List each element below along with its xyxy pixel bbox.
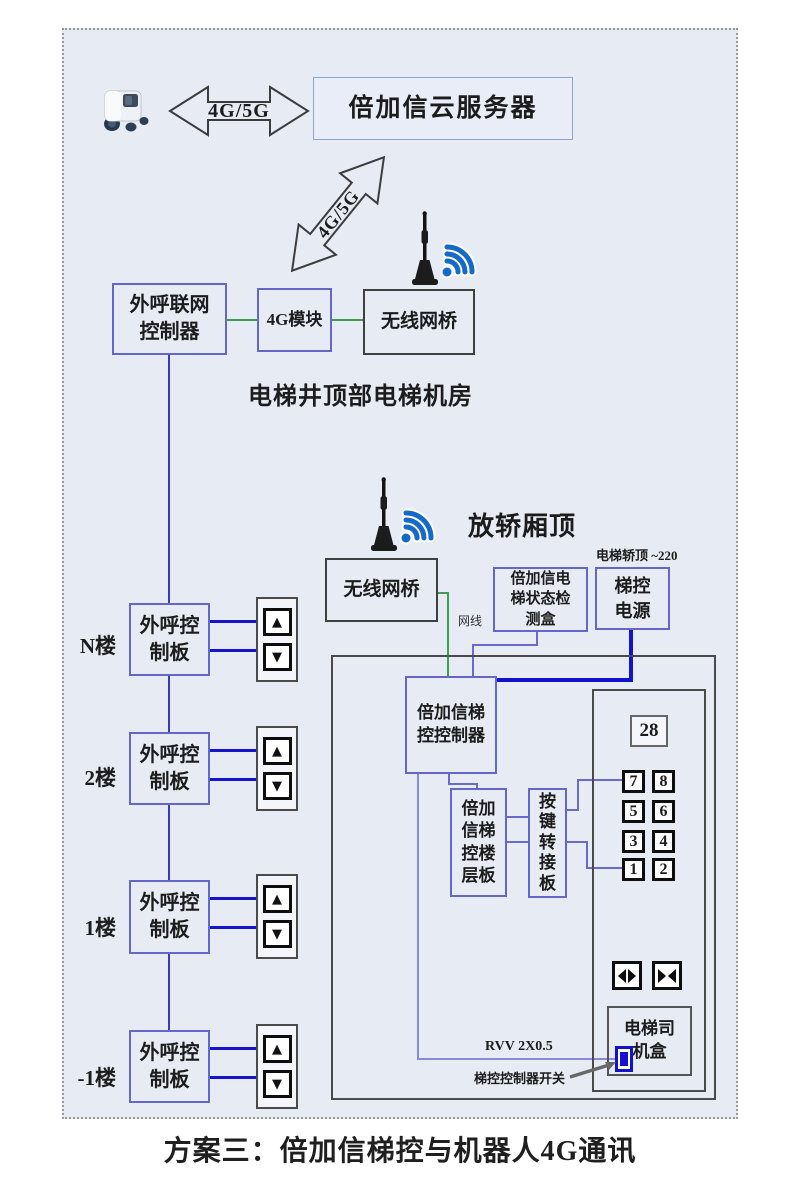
box-line: 外呼控 [140, 613, 200, 640]
trunk-line [168, 952, 170, 1031]
box-line: 控制器 [140, 319, 200, 346]
box-line: 控控制器 [417, 725, 485, 748]
floor-label-1: 1楼 [52, 912, 116, 942]
car-key-3: 3 [622, 830, 645, 853]
leader-arrow-icon [568, 1056, 618, 1080]
door-close-button [652, 961, 682, 990]
box-line: 外呼控 [140, 890, 200, 917]
floor-display: 28 [630, 715, 668, 747]
outcall-board-box: 外呼控 制板 [129, 1030, 210, 1103]
up-arrow-icon: ▲ [272, 615, 282, 630]
cloud-server-label: 倍加信云服务器 [348, 92, 537, 126]
down-arrow-icon: ▼ [272, 779, 282, 794]
diagram-canvas: { "page": { "title": "方案三：倍加信梯控与机器人4G通讯"… [0, 0, 800, 1193]
down-button: ▼ [263, 1070, 292, 1098]
wireless-bridge-box-machine-room: 无线网桥 [363, 289, 475, 355]
box-line: 无线网桥 [343, 577, 419, 603]
module-4g-box: 4G模块 [257, 288, 332, 352]
link-line [472, 644, 538, 646]
floor-board-box: 倍加 信梯 控楼 层板 [450, 788, 507, 897]
down-arrow-icon: ▼ [272, 1077, 282, 1092]
down-arrow-icon: ▼ [272, 927, 282, 942]
link-line [507, 841, 528, 843]
link-line [577, 780, 579, 811]
wireless-bridge-box-car-top: 无线网桥 [325, 558, 438, 622]
box-line: 4G模块 [267, 309, 323, 332]
up-button: ▲ [263, 737, 292, 765]
link-line [210, 620, 256, 623]
up-button: ▲ [263, 1035, 292, 1063]
floor-label-2: 2楼 [52, 762, 116, 792]
robot-cloud-link-arrow: 4G/5G [168, 84, 310, 138]
diagram-title: 方案三：倍加信梯控与机器人4G通讯 [0, 1129, 800, 1169]
link-line [210, 1076, 256, 1079]
link-line [210, 749, 256, 752]
box-line: 倍加信电 [510, 569, 570, 589]
car-key-2: 2 [652, 858, 675, 881]
link-line [586, 841, 588, 869]
car-key-8: 8 [652, 770, 675, 793]
up-arrow-icon: ▲ [272, 1042, 282, 1057]
box-line: 无线网桥 [381, 309, 457, 335]
car-key-5: 5 [622, 800, 645, 823]
wifi-antenna-icon [401, 210, 481, 292]
link-line [210, 926, 256, 929]
box-line: 键 [539, 812, 556, 832]
cloud-server-box: 倍加信云服务器 [313, 77, 573, 140]
door-close-icon [657, 967, 677, 985]
box-line: 制板 [150, 917, 190, 944]
box-line: 梯控 [615, 574, 651, 598]
box-line: 机盒 [633, 1041, 667, 1064]
box-line: 梯状态检 [510, 589, 570, 609]
key-adapter-box: 按 键 转 接 板 [528, 788, 567, 898]
door-open-icon [617, 967, 637, 985]
box-line: 制板 [150, 769, 190, 796]
trunk-line [168, 675, 170, 733]
hall-button-panel: ▲ ▼ [256, 726, 298, 811]
delivery-robot-icon [98, 84, 152, 134]
box-line: 信梯 [462, 820, 496, 842]
link-line [227, 319, 257, 321]
box-line: 层板 [462, 865, 496, 887]
net-cable-label: 网线 [458, 612, 482, 629]
down-arrow-icon: ▼ [272, 650, 282, 665]
key-label: 8 [660, 773, 668, 791]
outcall-board-box: 外呼控 制板 [129, 732, 210, 805]
car-key-4: 4 [652, 830, 675, 853]
door-open-button [612, 961, 642, 990]
box-line: 外呼控 [140, 1040, 200, 1067]
outcall-board-box: 外呼控 制板 [129, 603, 210, 676]
link-line [210, 897, 256, 900]
rvv-line [417, 774, 419, 1060]
box-line: 制板 [150, 1067, 190, 1094]
outcall-board-box: 外呼控 制板 [129, 880, 210, 954]
box-line: 接 [539, 853, 556, 873]
link-line [332, 319, 363, 321]
car-key-1: 1 [622, 858, 645, 881]
box-line: 电梯司 [624, 1018, 675, 1041]
wifi-antenna-icon [360, 476, 440, 558]
box-line: 控楼 [462, 843, 496, 865]
link-line [210, 778, 256, 781]
rvv-cable-label: RVV 2X0.5 [485, 1039, 553, 1055]
key-label: 5 [630, 803, 638, 821]
link-label: 4G/5G [168, 84, 310, 138]
down-button: ▼ [263, 643, 292, 671]
floor-label-n: N楼 [52, 630, 116, 660]
link-line [210, 1047, 256, 1050]
box-line: 制板 [150, 640, 190, 667]
up-button: ▲ [263, 608, 292, 636]
key-label: 7 [630, 773, 638, 791]
machine-room-caption: 电梯井顶部电梯机房 [248, 376, 473, 411]
link-line [448, 783, 478, 785]
key-label: 3 [630, 833, 638, 851]
box-line: 倍加信梯 [417, 702, 485, 725]
key-label: 2 [660, 861, 668, 879]
box-line: 外呼控 [140, 742, 200, 769]
up-button: ▲ [263, 885, 292, 913]
elevator-controller-box: 倍加信梯 控控制器 [405, 676, 497, 774]
key-label: 1 [630, 861, 638, 879]
switch-label: 梯控控制器开关 [474, 1068, 565, 1087]
box-line: 按 [539, 792, 556, 812]
link-line [507, 816, 528, 818]
hall-button-panel: ▲ ▼ [256, 597, 298, 682]
hall-button-panel: ▲ ▼ [256, 874, 298, 959]
floor-label-minus1: -1楼 [52, 1062, 116, 1092]
key-label: 6 [660, 803, 668, 821]
trunk-line [168, 355, 170, 603]
up-arrow-icon: ▲ [272, 744, 282, 759]
up-arrow-icon: ▲ [272, 892, 282, 907]
outcall-net-controller-box: 外呼联网 控制器 [112, 283, 227, 355]
power-box: 梯控 电源 [595, 567, 670, 630]
power-note: 电梯轿顶 ~220 [596, 545, 678, 564]
car-top-caption: 放轿厢顶 [468, 506, 576, 543]
down-button: ▼ [263, 772, 292, 800]
box-line: 转 [539, 833, 556, 853]
down-button: ▼ [263, 920, 292, 948]
hall-button-panel: ▲ ▼ [256, 1024, 298, 1109]
trunk-line [168, 804, 170, 881]
box-line: 板 [539, 874, 556, 894]
car-key-7: 7 [622, 770, 645, 793]
floor-display-value: 28 [640, 718, 659, 744]
link-line [566, 841, 588, 843]
box-line: 外呼联网 [130, 292, 210, 319]
box-line: 电源 [615, 599, 651, 623]
link-line [210, 649, 256, 652]
key-label: 4 [660, 833, 668, 851]
box-line: 测盒 [525, 610, 555, 630]
box-line: 倍加 [462, 798, 496, 820]
switch-toggle [620, 1052, 628, 1066]
car-key-6: 6 [652, 800, 675, 823]
status-detect-box: 倍加信电 梯状态检 测盒 [493, 567, 588, 632]
